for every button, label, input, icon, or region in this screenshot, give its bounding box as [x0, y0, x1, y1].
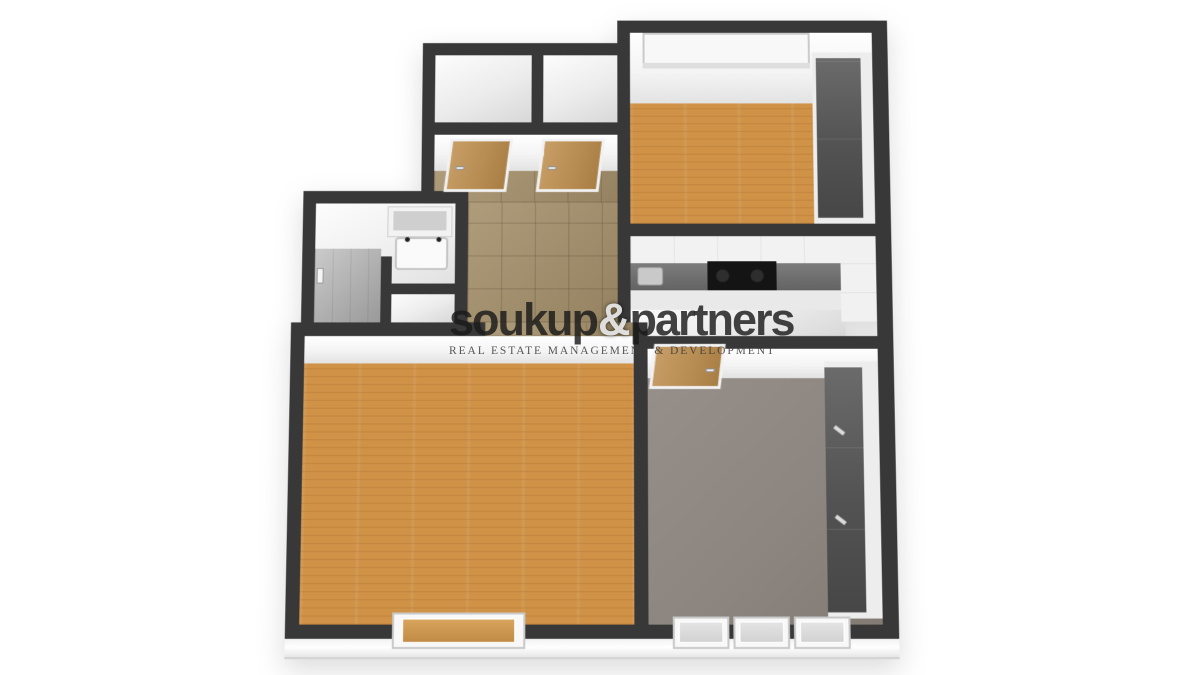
kitchen-upper-cabinets	[630, 236, 841, 263]
washing-machine-top	[393, 211, 446, 230]
cooktop	[707, 261, 776, 290]
window-frame-bedroom-top	[643, 33, 810, 65]
faucet-icon	[405, 237, 410, 242]
room-storage-closet-left	[435, 55, 532, 122]
wall-closets-top	[423, 43, 629, 55]
door-handle-icon	[705, 368, 714, 372]
wall-living-bedroom-divider	[634, 322, 649, 625]
window-glass	[800, 622, 845, 643]
wall-closets-bottom	[422, 122, 629, 134]
wardrobe-bedroom-top-front	[816, 58, 864, 218]
living-room-top-wall-face	[304, 336, 634, 363]
wall-bathroom-right	[454, 191, 468, 336]
wall-top-right	[617, 21, 887, 33]
floorplan-render: soukup&partners REAL ESTATE MANAGEMENT &…	[0, 0, 1200, 675]
faucet-icon	[436, 237, 441, 242]
wardrobe-handle-icon	[835, 515, 847, 526]
wall-bathroom-left	[301, 191, 317, 336]
window-glass	[679, 622, 724, 643]
wardrobe-bedroom-bottom-front	[824, 367, 866, 612]
kitchen-lower-cabinets	[631, 290, 843, 309]
window-sill	[643, 63, 810, 69]
room-living-room-floor	[299, 356, 634, 625]
window-glass	[739, 622, 784, 643]
door-handle-icon	[547, 166, 556, 170]
wall-bathroom-partition-horizontal	[381, 284, 468, 295]
bathroom-sink	[395, 237, 449, 270]
wall-kitchen-top	[618, 224, 876, 237]
apartment-plan	[284, 19, 901, 661]
wall-closet-divider	[531, 43, 543, 135]
shower-area	[314, 249, 381, 323]
wall-living-top	[291, 322, 485, 336]
shower-fixture-icon	[317, 268, 324, 283]
wall-kitchen-left	[618, 224, 631, 336]
door-closet-left	[443, 139, 513, 192]
door-handle-icon	[455, 166, 464, 170]
wall-hall-bedroom-divider	[617, 21, 630, 238]
wall-bathroom-top	[303, 191, 468, 203]
wardrobe-handle-icon	[833, 425, 845, 435]
kitchen-corner-cabinets	[840, 236, 877, 322]
corridor-floor	[467, 203, 617, 323]
kitchen-sink	[637, 267, 663, 285]
corridor-opening-floor	[485, 322, 634, 336]
door-closet-right	[536, 139, 606, 192]
window-living-room-blind	[402, 619, 515, 643]
door-bedroom-bottom	[649, 344, 726, 389]
room-storage-closet-right	[543, 55, 617, 122]
room-toilet-floor	[391, 294, 455, 322]
